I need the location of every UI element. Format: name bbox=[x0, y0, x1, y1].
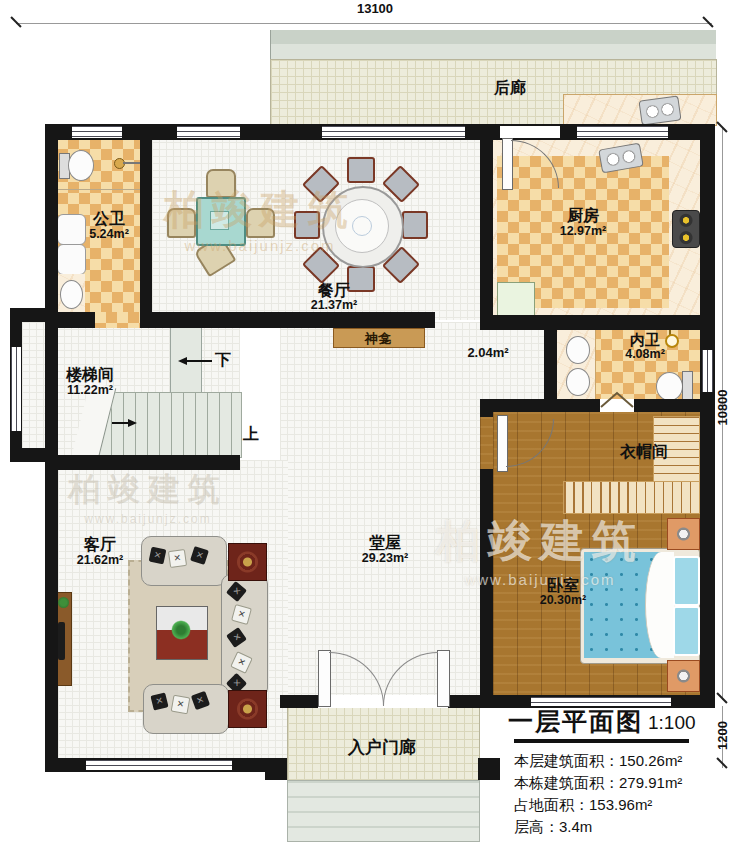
wall bbox=[480, 138, 493, 328]
room-area-kitchen: 12.97m² bbox=[543, 225, 623, 238]
plant-icon bbox=[58, 597, 69, 608]
stair-treads bbox=[98, 392, 242, 458]
round-table-center bbox=[352, 216, 372, 236]
room-label-entry-porch: 入户门廊 bbox=[322, 736, 442, 759]
plant-icon bbox=[171, 620, 191, 640]
window bbox=[322, 126, 465, 138]
kitchen-door-opening bbox=[500, 126, 560, 138]
bed-pillow bbox=[673, 556, 700, 606]
chair bbox=[402, 211, 428, 239]
stair-down-arrowhead bbox=[178, 357, 187, 365]
room-label-public-bath: 公卫 bbox=[70, 211, 148, 227]
stair-down-label: 下 bbox=[212, 350, 234, 371]
room-area-dining: 21.37m² bbox=[294, 299, 374, 312]
clothes-rack bbox=[563, 481, 700, 514]
wall bbox=[480, 315, 715, 330]
room-label-dining: 餐厅 bbox=[294, 283, 374, 299]
window bbox=[72, 126, 122, 138]
room-area-hall: 29.23m² bbox=[352, 552, 418, 565]
washbasin-icon bbox=[566, 368, 590, 396]
square-table-inlay bbox=[210, 211, 229, 230]
room-area-stairwell: 11.22m² bbox=[52, 384, 128, 397]
wall-column bbox=[265, 758, 287, 780]
wall bbox=[480, 399, 715, 412]
window bbox=[702, 350, 713, 392]
washbasin-icon bbox=[60, 280, 83, 309]
chair bbox=[347, 157, 375, 183]
plan-title: 一层平面图 bbox=[508, 705, 650, 738]
info-footprint-area: 占地面积：153.96m² bbox=[514, 796, 734, 815]
floor-plan-canvas: ✕ ✕ ✕ ✕ ✕ ✕ ✕ ✕ ✕ ✕ ✕ bbox=[0, 0, 750, 858]
entry-door-leaf bbox=[437, 650, 450, 707]
info-floor-area: 本层建筑面积：150.26m² bbox=[514, 752, 734, 771]
sofa-pillow: ✕ bbox=[149, 547, 167, 565]
nightstand bbox=[667, 660, 700, 692]
washbasin-icon bbox=[566, 336, 590, 364]
room-label-inner-bath: 内卫 bbox=[612, 332, 678, 348]
window bbox=[577, 126, 668, 138]
dimension-tick bbox=[10, 16, 21, 27]
stair-up-label: 上 bbox=[240, 424, 262, 445]
room-label-stairwell: 楼梯间 bbox=[52, 367, 128, 383]
title-rule bbox=[514, 739, 689, 743]
nightstand bbox=[667, 518, 700, 550]
shrine-label: 神龛 bbox=[333, 330, 423, 348]
fridge-icon bbox=[497, 282, 535, 318]
dimension-line bbox=[16, 23, 712, 24]
window bbox=[11, 347, 21, 431]
sofa-pillow: ✕ bbox=[171, 695, 191, 715]
stair-up-arrowhead bbox=[128, 419, 137, 427]
bed-sheet bbox=[645, 552, 674, 658]
dimension-porch: 1200 bbox=[715, 714, 730, 758]
stair-down-arrow bbox=[186, 360, 212, 362]
chair bbox=[206, 169, 236, 198]
bifold-door-icon bbox=[600, 390, 634, 408]
dimension-top: 13100 bbox=[320, 1, 430, 16]
entry-steps bbox=[287, 780, 480, 842]
passage-area-label: 2.04m² bbox=[462, 345, 514, 360]
chair bbox=[246, 208, 275, 238]
dimension-side: 10800 bbox=[715, 383, 730, 433]
wall-column bbox=[478, 758, 500, 780]
room-label-back-porch: 后廊 bbox=[470, 80, 550, 96]
bath-door-threshold bbox=[95, 312, 140, 328]
tv-icon bbox=[58, 622, 65, 660]
side-table bbox=[228, 543, 267, 581]
room-label-bedroom: 卧室 bbox=[530, 578, 596, 594]
room-area-inner-bath: 4.08m² bbox=[612, 348, 678, 361]
info-total-area: 本栋建筑面积：279.91m² bbox=[514, 774, 734, 793]
dimension-tick bbox=[702, 16, 713, 27]
bed-pillow bbox=[673, 606, 700, 656]
porch-eave-band bbox=[270, 30, 716, 44]
sofa-pillow: ✕ bbox=[168, 549, 187, 568]
wall bbox=[700, 124, 715, 708]
info-floor-height: 层高：3.4m bbox=[514, 818, 734, 837]
chair bbox=[167, 208, 196, 238]
window bbox=[86, 760, 232, 770]
stair-up-arrow bbox=[112, 422, 128, 424]
room-label-kitchen: 厨房 bbox=[543, 208, 623, 224]
room-area-public-bath: 5.24m² bbox=[70, 228, 148, 241]
suite-door-opening bbox=[480, 417, 493, 469]
shower-stall bbox=[57, 244, 86, 275]
chair bbox=[294, 211, 320, 239]
toilet-icon bbox=[68, 150, 94, 181]
window bbox=[177, 126, 240, 138]
room-label-living: 客厅 bbox=[62, 537, 138, 553]
hall-floor bbox=[280, 322, 480, 702]
toilet-icon bbox=[656, 372, 683, 401]
bath-partition-line bbox=[58, 189, 140, 190]
side-table bbox=[228, 690, 267, 728]
wall bbox=[45, 455, 240, 470]
shower-arm bbox=[123, 162, 141, 164]
plan-scale: 1:100 bbox=[648, 712, 696, 734]
porch-eave-band bbox=[270, 44, 716, 59]
toilet-icon bbox=[682, 371, 693, 402]
room-area-bedroom: 20.30m² bbox=[530, 594, 596, 607]
shower-valve-icon bbox=[114, 158, 125, 169]
room-label-hall: 堂屋 bbox=[352, 535, 418, 551]
room-area-living: 21.62m² bbox=[62, 554, 138, 567]
room-label-closet: 衣帽间 bbox=[606, 444, 682, 460]
stove-icon bbox=[672, 210, 700, 248]
